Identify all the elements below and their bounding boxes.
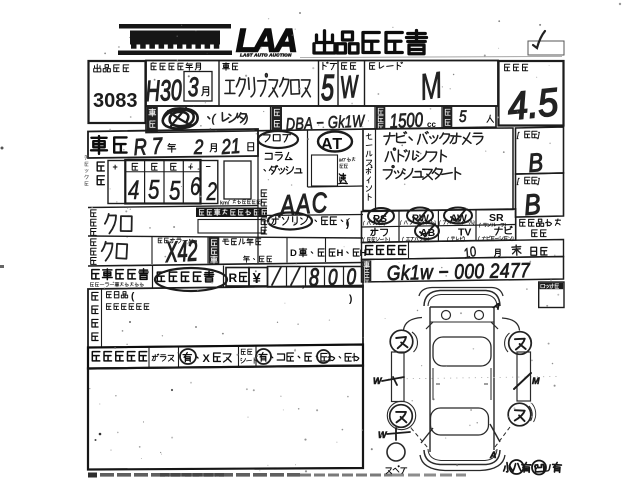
svg-text:]: ] [537,177,541,186]
svg-text:): ) [472,220,475,225]
svg-text:2: 2 [206,177,218,205]
svg-text:LAST AUTO AUCTION: LAST AUTO AUCTION [240,53,292,58]
svg-text:(: ( [402,237,404,242]
svg-text:[: [ [516,177,520,186]
svg-text:(: ( [363,237,365,242]
svg-text:21: 21 [220,135,241,159]
svg-text:Gk1w − 000 2477: Gk1w − 000 2477 [387,260,532,286]
svg-text:8: 8 [309,263,319,292]
svg-text:3083: 3083 [93,90,138,112]
svg-text:0: 0 [328,266,338,291]
svg-text:DBA − Gk1W: DBA − Gk1W [285,112,366,135]
svg-text:A: A [489,450,497,460]
svg-text:[: [ [516,131,520,140]
svg-text:5: 5 [148,175,160,205]
svg-text:,: , [302,278,305,290]
svg-text:): ) [346,219,349,230]
svg-text:10: 10 [462,244,478,262]
svg-text:H30: H30 [145,75,182,108]
svg-text:T: T [343,157,347,162]
svg-text:(: ( [212,113,217,125]
svg-text:): ) [349,294,352,305]
svg-text:−: − [206,162,211,172]
svg-text:(: ( [400,220,402,225]
svg-text:W: W [339,70,361,105]
svg-text:5: 5 [169,176,181,206]
svg-text:M: M [417,64,444,108]
svg-text:¥: ¥ [253,270,262,287]
svg-text:B: B [523,188,542,222]
svg-text:(: ( [439,220,441,225]
svg-text:4: 4 [128,175,139,205]
svg-text:SR: SR [489,212,504,224]
svg-text:5: 5 [459,108,467,127]
svg-text:W: W [378,430,388,440]
svg-text:6: 6 [190,172,201,200]
svg-text:4.5: 4.5 [505,80,561,129]
svg-text:cc: cc [427,120,436,129]
svg-text:5: 5 [321,69,334,108]
svg-text:M: M [532,376,540,386]
svg-text:+: + [113,162,118,172]
svg-text:(: ( [228,200,230,205]
svg-text:(: ( [131,292,135,303]
svg-text:(: ( [363,221,365,226]
svg-text:2: 2 [193,136,204,159]
svg-text:A: A [491,300,501,312]
svg-text:X: X [203,353,211,365]
svg-text:R: R [229,271,238,285]
svg-text:]: ] [537,131,541,140]
svg-text:D: D [290,248,297,259]
svg-text:R 7: R 7 [133,134,164,161]
svg-text:H: H [337,248,344,259]
